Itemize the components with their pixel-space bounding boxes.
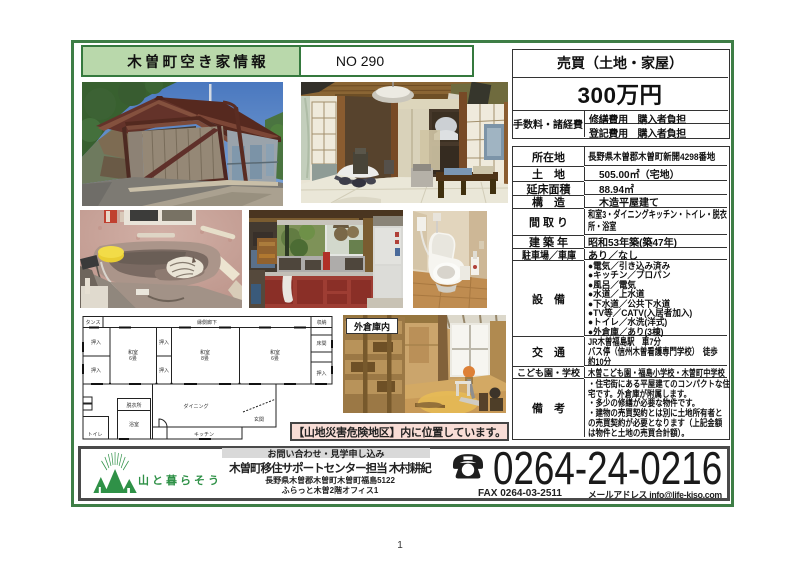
svg-text:床間: 床間 (316, 340, 326, 347)
svg-text:和室: 和室 (200, 349, 210, 356)
svg-text:押入: 押入 (159, 339, 169, 346)
svg-text:脱衣所: 脱衣所 (126, 402, 141, 409)
svg-text:浴室: 浴室 (129, 421, 139, 428)
svg-text:押入: 押入 (316, 370, 326, 377)
svg-text:ダイニング: ダイニング (183, 403, 208, 410)
svg-text:タンス: タンス (86, 319, 101, 326)
svg-text:8畳: 8畳 (201, 356, 209, 362)
svg-text:押入: 押入 (91, 339, 101, 346)
svg-text:押入: 押入 (159, 367, 169, 374)
svg-text:トイレ: トイレ (87, 432, 102, 438)
svg-text:収納: 収納 (316, 319, 326, 326)
svg-text:押入: 押入 (91, 367, 101, 374)
svg-text:和室: 和室 (270, 349, 280, 356)
svg-text:和室: 和室 (128, 349, 138, 356)
svg-text:縁側廊下: 縁側廊下 (197, 319, 217, 326)
svg-text:玄関: 玄関 (254, 416, 264, 423)
svg-text:キッチン: キッチン (194, 432, 214, 438)
svg-text:6畳: 6畳 (129, 356, 137, 362)
svg-text:6畳: 6畳 (271, 356, 279, 362)
